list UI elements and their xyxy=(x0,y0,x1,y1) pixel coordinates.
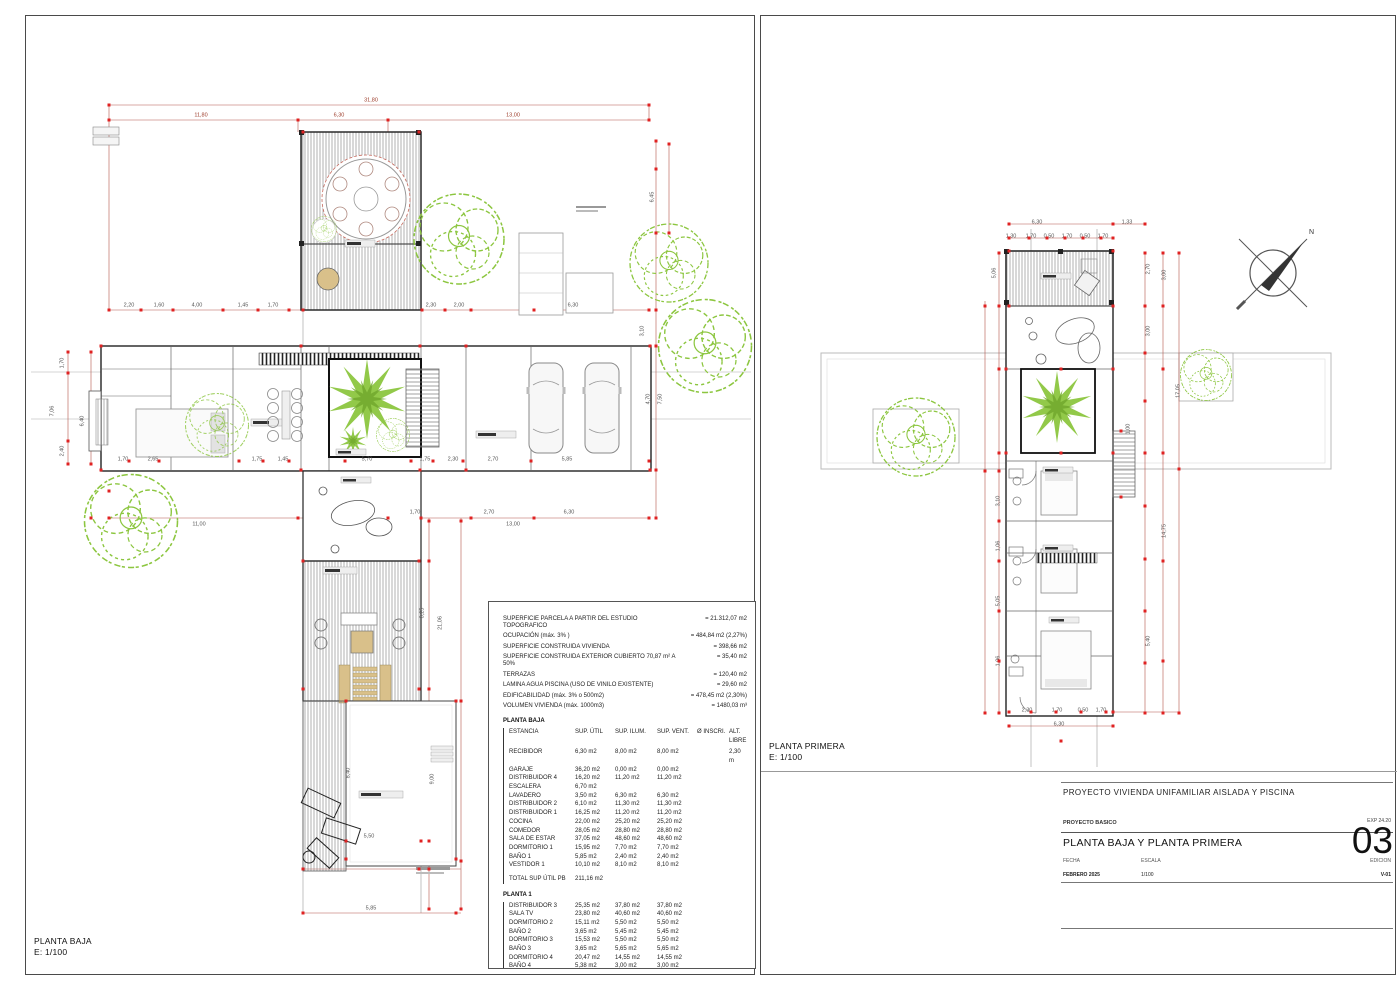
dimension-marker xyxy=(1144,252,1147,255)
dimension-label: 13,00 xyxy=(506,113,520,119)
dimension-label: 3,00 xyxy=(1146,326,1152,337)
dimension-marker xyxy=(428,520,431,523)
stairs xyxy=(1113,431,1135,497)
dimension-marker xyxy=(655,140,658,143)
pool xyxy=(346,701,456,866)
dimension-label: 6,30 xyxy=(1054,722,1065,728)
dimension-label: 5,05 xyxy=(996,596,1002,607)
dimension-label: 5,85 xyxy=(366,906,377,912)
dimension-marker xyxy=(432,460,435,463)
dimension-marker xyxy=(67,372,70,375)
dimension-label: 5,50 xyxy=(364,834,375,840)
dimension-label: 6,30 xyxy=(334,113,345,119)
dimension-label: 17,05 xyxy=(1176,384,1182,398)
dimension-marker xyxy=(345,858,348,861)
dimension-marker xyxy=(428,908,431,911)
dimension-marker xyxy=(420,840,423,843)
dimension-marker xyxy=(1112,305,1115,308)
dimension-label: 1,06 xyxy=(996,541,1002,552)
planta-1-table-title: PLANTA 1 xyxy=(503,892,747,898)
dimension-marker xyxy=(1112,368,1115,371)
plan-scale: E: 1/100 xyxy=(34,947,92,958)
dimension-marker xyxy=(1162,560,1165,563)
dimension-label: 3,10 xyxy=(996,496,1002,507)
dimension-marker xyxy=(1112,223,1115,226)
summary-row: VOLUMEN VIVIENDA (máx. 1000m3)= 1480,03 … xyxy=(503,703,747,710)
dimension-marker xyxy=(90,463,93,466)
dimension-marker xyxy=(1112,711,1115,714)
dimension-marker xyxy=(1178,252,1181,255)
dimension-marker xyxy=(428,868,431,871)
sheet-number: 03 xyxy=(1352,822,1393,859)
planta-baja-table: ESTANCIASUP. ÚTILSUP. ILUM.SUP. VENT.Ø I… xyxy=(503,728,747,884)
dimension-marker xyxy=(648,119,651,122)
dimension-marker xyxy=(100,345,103,348)
dimension-marker xyxy=(1060,740,1063,743)
dimension-marker xyxy=(1028,237,1031,240)
dimension-label: 31,80 xyxy=(364,98,378,104)
table-row: SALA TV23,80 m240,60 m240,60 m2 xyxy=(509,910,747,919)
dimension-marker xyxy=(302,309,305,312)
dimension-label: 8,40 xyxy=(346,768,352,779)
dimension-marker xyxy=(1144,305,1147,308)
dimension-marker xyxy=(455,912,458,915)
dimension-marker xyxy=(1082,237,1085,240)
dimension-marker xyxy=(345,840,348,843)
dimension-label: 7,06 xyxy=(50,406,56,417)
dimension-marker xyxy=(262,460,265,463)
dimension-marker xyxy=(668,232,671,235)
dimension-marker xyxy=(1144,505,1147,508)
dimension-label: 5,70 xyxy=(362,457,373,463)
dimension-marker xyxy=(1144,223,1147,226)
dimension-label: 14,75 xyxy=(1162,524,1168,538)
dimension-label: 2,70 xyxy=(484,510,495,516)
dimension-label: 4,00 xyxy=(192,303,203,309)
car-icon xyxy=(583,363,622,453)
bottom-wing xyxy=(301,471,456,874)
dimension-marker xyxy=(455,858,458,861)
table-row: BAÑO 33,65 m25,65 m25,65 m2 xyxy=(509,945,747,954)
dimension-marker xyxy=(648,104,651,107)
dimension-label: 6,30 xyxy=(564,510,575,516)
dimension-marker xyxy=(302,688,305,691)
edicion-value: V-01 xyxy=(1381,872,1391,878)
dimension-marker xyxy=(140,309,143,312)
dimension-marker xyxy=(1144,662,1147,665)
table-header-row: ESTANCIASUP. ÚTILSUP. ILUM.SUP. VENT.Ø I… xyxy=(509,728,747,745)
dimension-marker xyxy=(410,460,413,463)
dimension-marker xyxy=(288,309,291,312)
dimension-marker xyxy=(655,469,658,472)
dimension-marker xyxy=(1046,237,1049,240)
dimension-marker xyxy=(998,520,1001,523)
dimension-marker xyxy=(655,309,658,312)
dimension-label: 2,30 xyxy=(448,457,459,463)
dimension-marker xyxy=(1112,237,1115,240)
area-schedule-box: SUPERFICIE PARCELA A PARTIR DEL ESTUDIO … xyxy=(488,601,756,969)
dimension-marker xyxy=(222,309,225,312)
dimension-marker xyxy=(428,688,431,691)
dimension-marker xyxy=(1112,250,1115,253)
dimension-marker xyxy=(421,309,424,312)
dimension-marker xyxy=(1144,400,1147,403)
dimension-marker xyxy=(460,520,463,523)
dimension-marker xyxy=(100,469,103,472)
sheet-planta-baja: 31,8011,806,3013,002,201,604,001,451,702… xyxy=(25,15,755,975)
dimension-label: 5,06 xyxy=(992,268,998,279)
dimension-marker xyxy=(460,908,463,911)
dimension-marker xyxy=(108,490,111,493)
dimension-marker xyxy=(655,168,658,171)
dimension-marker xyxy=(648,517,651,520)
dimension-marker xyxy=(984,305,987,308)
dimension-label: 4,70 xyxy=(646,394,652,405)
dimension-label: 5,85 xyxy=(562,457,573,463)
dimension-label: 1,70 xyxy=(60,358,66,369)
dimension-label: 3,00 xyxy=(1162,270,1168,281)
project-phase: PROYECTO BASICO xyxy=(1063,820,1117,826)
table-row: BAÑO 45,38 m23,00 m23,00 m2 xyxy=(509,962,747,969)
terrace-top-wing xyxy=(93,127,421,310)
dimension-marker xyxy=(533,517,536,520)
dimension-marker xyxy=(1005,368,1008,371)
dimension-marker xyxy=(1105,711,1108,714)
dimension-marker xyxy=(1162,452,1165,455)
dimension-marker xyxy=(998,305,1001,308)
table-row: ESCALERA6,70 m2 xyxy=(509,783,747,792)
dimension-label: 2,70 xyxy=(1146,264,1152,275)
dimension-marker xyxy=(1162,305,1165,308)
dimension-marker xyxy=(387,119,390,122)
dimension-label: 11,80 xyxy=(194,113,207,119)
edicion-label: EDICION xyxy=(1370,858,1391,864)
dimension-marker xyxy=(1060,368,1063,371)
dimension-marker xyxy=(655,232,658,235)
dimension-label: 6,45 xyxy=(650,192,656,203)
dimension-label: 21,06 xyxy=(438,616,444,630)
dimension-marker xyxy=(128,460,131,463)
north-arrow-icon xyxy=(1237,239,1307,309)
dimension-label: 2,40 xyxy=(60,446,66,457)
dimension-marker xyxy=(998,560,1001,563)
plan-scale: E: 1/100 xyxy=(769,752,845,763)
dimension-marker xyxy=(465,345,468,348)
dimension-marker xyxy=(1178,712,1181,715)
dimension-marker xyxy=(655,517,658,520)
dimension-marker xyxy=(387,517,390,520)
summary-row: SUPERFICIE CONSTRUIDA EXTERIOR CUBIERTO … xyxy=(503,654,747,667)
dimension-marker xyxy=(302,912,305,915)
dimension-marker xyxy=(108,309,111,312)
escala-value: 1/100 xyxy=(1141,872,1154,878)
dimension-marker xyxy=(470,517,473,520)
sheet-divider xyxy=(761,771,1397,772)
plan-name: PLANTA PRIMERA xyxy=(769,741,845,752)
dimension-label: 6,30 xyxy=(1032,220,1043,226)
dimension-marker xyxy=(984,712,987,715)
dimension-marker xyxy=(998,252,1001,255)
dimension-marker xyxy=(1008,237,1011,240)
table-row: DORMITORIO 115,95 m27,70 m27,70 m2 xyxy=(509,844,747,853)
surface-summary: SUPERFICIE PARCELA A PARTIR DEL ESTUDIO … xyxy=(503,616,747,710)
dimension-marker xyxy=(1112,452,1115,455)
dimension-marker xyxy=(1144,558,1147,561)
dimension-marker xyxy=(108,104,111,107)
dimension-marker xyxy=(297,517,300,520)
dimension-marker xyxy=(1162,252,1165,255)
fecha-value: FEBRERO 2025 xyxy=(1063,872,1100,878)
dimension-marker xyxy=(90,517,93,520)
dimension-marker xyxy=(444,309,447,312)
dimension-marker xyxy=(1008,305,1011,308)
dimension-marker xyxy=(1055,711,1058,714)
sheet-planta-primera: 6,301,331,301,700,501,700,501,705,062,70… xyxy=(760,15,1396,975)
dimension-marker xyxy=(428,560,431,563)
dimension-marker xyxy=(462,460,465,463)
summary-row: EDIFICABILIDAD (máx. 3% o 500m2)= 478,45… xyxy=(503,693,747,700)
plan-name: PLANTA BAJA xyxy=(34,936,92,947)
title-block: PROYECTO VIVIENDA UNIFAMILIAR AISLADA Y … xyxy=(1061,782,1393,974)
wardrobe xyxy=(1037,553,1097,563)
table-row: VESTIDOR 110,10 m28,10 m28,10 m2 xyxy=(509,861,747,870)
dimension-marker xyxy=(649,469,652,472)
dimension-marker xyxy=(67,440,70,443)
table-row: BAÑO 15,85 m22,40 m22,40 m2 xyxy=(509,853,747,862)
dimension-label: 7,50 xyxy=(658,394,664,405)
table-row: DORMITORIO 315,53 m25,50 m25,50 m2 xyxy=(509,936,747,945)
dimension-marker xyxy=(470,309,473,312)
dimension-marker xyxy=(344,460,347,463)
dimension-label: 2,20 xyxy=(124,303,135,309)
dimension-marker xyxy=(108,119,111,122)
table-row: DISTRIBUIDOR 416,20 m211,20 m211,20 m2 xyxy=(509,774,747,783)
dimension-label: 2,70 xyxy=(488,457,499,463)
table-row: DISTRIBUIDOR 116,25 m211,20 m211,20 m2 xyxy=(509,809,747,818)
dimension-marker xyxy=(419,345,422,348)
dimension-marker xyxy=(533,309,536,312)
dimension-marker xyxy=(1112,725,1115,728)
dimension-marker xyxy=(1120,430,1123,433)
dimension-label: 1,45 xyxy=(238,303,249,309)
table-row: DORMITORIO 420,47 m214,55 m214,55 m2 xyxy=(509,954,747,963)
sheet-title: PLANTA BAJA Y PLANTA PRIMERA xyxy=(1063,837,1242,849)
table-row: DISTRIBUIDOR 26,10 m211,30 m211,30 m2 xyxy=(509,800,747,809)
dimension-marker xyxy=(1008,250,1011,253)
dimension-marker xyxy=(460,860,463,863)
north-label: N xyxy=(1309,229,1314,236)
first-floor-plan xyxy=(1004,249,1135,716)
dimension-marker xyxy=(465,469,468,472)
dimension-marker xyxy=(302,560,305,563)
dimension-marker xyxy=(460,700,463,703)
dimension-marker xyxy=(668,143,671,146)
dimension-marker xyxy=(1005,452,1008,455)
table-row: DORMITORIO 215,11 m25,50 m25,50 m2 xyxy=(509,919,747,928)
table-row: DISTRIBUIDOR 325,35 m237,80 m237,80 m2 xyxy=(509,902,747,911)
dimension-marker xyxy=(419,469,422,472)
dimension-marker xyxy=(302,868,305,871)
summary-row: LAMINA AGUA PISCINA (USO DE VINILO EXIST… xyxy=(503,682,747,689)
dimension-marker xyxy=(1144,610,1147,613)
outbuildings xyxy=(519,206,613,315)
dimension-marker xyxy=(300,345,303,348)
summary-row: TERRAZAS= 120,40 m2 xyxy=(503,672,747,679)
dimension-label: 2,30 xyxy=(426,303,437,309)
dimension-marker xyxy=(998,712,1001,715)
dimension-marker xyxy=(302,131,305,134)
summary-row: OCUPACIÓN (máx. 3% )= 484,84 m2 (2,27%) xyxy=(503,633,747,640)
dimension-marker xyxy=(1144,712,1147,715)
dimension-label: 1,33 xyxy=(1122,220,1133,226)
dimension-label: 1,00 xyxy=(1126,424,1132,435)
dimension-marker xyxy=(648,460,651,463)
dimension-marker xyxy=(998,660,1001,663)
project-title: PROYECTO VIVIENDA UNIFAMILIAR AISLADA Y … xyxy=(1063,788,1295,797)
planta-1-table: DISTRIBUIDOR 325,35 m237,80 m237,80 m2SA… xyxy=(503,902,747,969)
dimension-label: 1,70 xyxy=(410,510,421,516)
table-row: GARAJE36,20 m20,00 m20,00 m2 xyxy=(509,766,747,775)
dimension-marker xyxy=(1008,711,1011,714)
dimension-marker xyxy=(297,119,300,122)
dimension-marker xyxy=(984,470,987,473)
dimension-marker xyxy=(1008,223,1011,226)
dimension-marker xyxy=(1162,368,1165,371)
dimension-marker xyxy=(108,517,111,520)
stairs xyxy=(406,369,439,447)
plan-title-planta-primera: PLANTA PRIMERA E: 1/100 xyxy=(769,741,845,762)
dimension-marker xyxy=(418,868,421,871)
dimension-marker xyxy=(1120,496,1123,499)
dimension-marker xyxy=(420,517,423,520)
dimension-marker xyxy=(257,309,260,312)
summary-row: SUPERFICIE PARCELA A PARTIR DEL ESTUDIO … xyxy=(503,616,747,629)
dimension-marker xyxy=(655,345,658,348)
dimension-marker xyxy=(172,309,175,312)
dimension-marker xyxy=(300,469,303,472)
dimension-marker xyxy=(418,688,421,691)
dimension-marker xyxy=(1178,468,1181,471)
dimension-marker xyxy=(1060,452,1063,455)
dimension-marker xyxy=(998,452,1001,455)
dimension-marker xyxy=(67,463,70,466)
dimension-marker xyxy=(998,610,1001,613)
dimension-marker xyxy=(67,351,70,354)
table-row: RECIBIDOR6,30 m28,00 m28,00 m22,30 m xyxy=(509,748,747,765)
dimension-marker xyxy=(998,368,1001,371)
dimension-marker xyxy=(238,460,241,463)
dimension-marker xyxy=(158,460,161,463)
dimension-marker xyxy=(649,345,652,348)
dimension-marker xyxy=(1144,352,1147,355)
dimension-label: 6,40 xyxy=(80,416,86,427)
dimension-marker xyxy=(1100,237,1103,240)
dimension-label: 6,30 xyxy=(568,303,579,309)
dimension-label: 3,10 xyxy=(640,326,646,337)
dimension-marker xyxy=(998,470,1001,473)
planta-baja-table-title: PLANTA BAJA xyxy=(503,718,747,724)
main-band-rooms xyxy=(89,346,651,471)
plan-title-planta-baja: PLANTA BAJA E: 1/100 xyxy=(34,936,92,957)
dimension-marker xyxy=(1144,452,1147,455)
dimension-label: 9,00 xyxy=(430,774,436,785)
dimension-marker xyxy=(1080,711,1083,714)
dimension-label: 13,00 xyxy=(506,522,520,528)
dimension-label: 11,00 xyxy=(192,522,205,528)
dimension-label: 8,25 xyxy=(420,608,426,619)
drawing-canvas: 31,8011,806,3013,002,201,604,001,451,702… xyxy=(0,0,1400,989)
car-icon xyxy=(527,363,566,453)
table-total-row: TOTAL SUP ÚTIL PB211,16 m2 xyxy=(509,875,747,884)
dimension-marker xyxy=(455,700,458,703)
dimension-marker xyxy=(90,351,93,354)
summary-row: SUPERFICIE CONSTRUIDA VIVIENDA= 398,66 m… xyxy=(503,644,747,651)
dimension-marker xyxy=(345,700,348,703)
dimension-marker xyxy=(428,840,431,843)
table-row: COCINA22,00 m225,20 m225,20 m2 xyxy=(509,818,747,827)
dimension-marker xyxy=(418,131,421,134)
dimension-marker xyxy=(530,460,533,463)
dimension-label: 1,75 xyxy=(420,457,431,463)
dimension-marker xyxy=(1030,711,1033,714)
dimension-marker xyxy=(1064,237,1067,240)
escala-label: ESCALA xyxy=(1141,858,1161,864)
dimension-label: 2,00 xyxy=(454,303,465,309)
planter xyxy=(317,268,339,290)
dimension-label: 1,70 xyxy=(268,303,279,309)
dimension-marker xyxy=(1162,660,1165,663)
fecha-label: FECHA xyxy=(1063,858,1080,864)
dimension-marker xyxy=(1162,712,1165,715)
dimension-marker xyxy=(1008,725,1011,728)
table-row: COMEDOR28,05 m228,80 m228,80 m2 xyxy=(509,827,747,836)
dimension-label: 5,40 xyxy=(1146,636,1152,647)
dimension-label: 1,60 xyxy=(154,303,165,309)
table-row: BAÑO 23,65 m25,45 m25,45 m2 xyxy=(509,928,747,937)
dimension-marker xyxy=(418,560,421,563)
table-row: LAVADERO3,50 m26,30 m26,30 m2 xyxy=(509,792,747,801)
table-row: SALA DE ESTAR37,05 m248,60 m248,60 m2 xyxy=(509,835,747,844)
dimension-marker xyxy=(648,309,651,312)
dimension-marker xyxy=(288,460,291,463)
